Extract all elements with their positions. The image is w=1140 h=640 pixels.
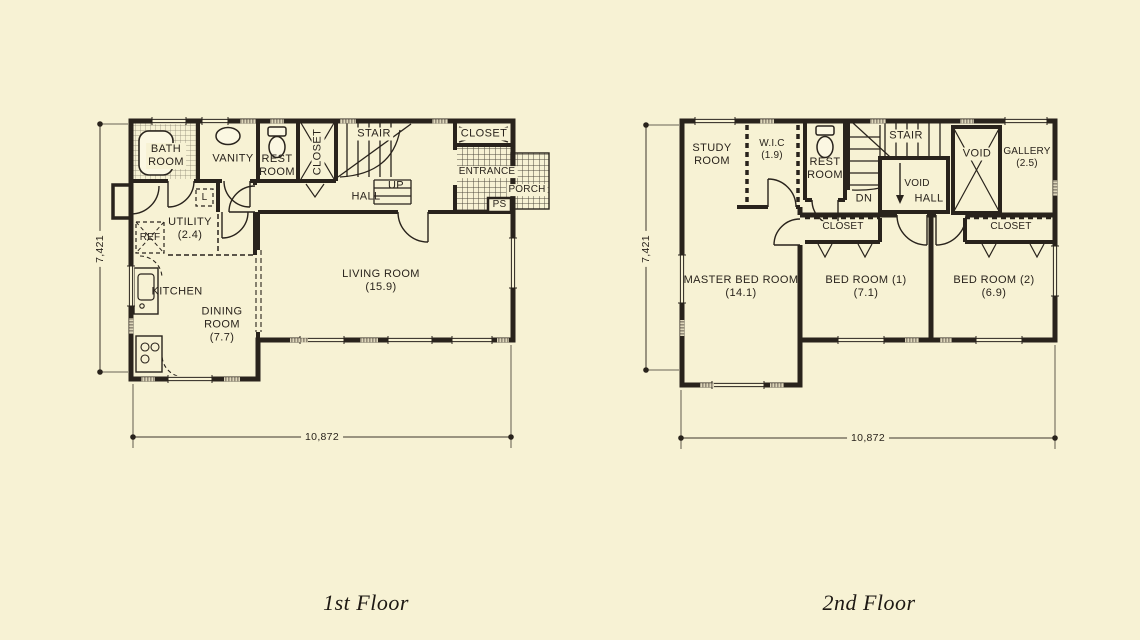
dim-height-1f: 7,421	[94, 231, 106, 267]
room-label-porch: PORCH	[506, 184, 547, 196]
dim-height-2f: 7,421	[640, 231, 652, 267]
stove-burner	[151, 343, 159, 351]
label-stair-dn: DN	[856, 193, 873, 206]
floor2-fixtures	[816, 126, 834, 158]
room-label-bedroom1: BED ROOM (1) (7.1)	[825, 274, 906, 300]
stove-burner	[141, 343, 149, 351]
room-label-wic: W.I.C (1.9)	[759, 138, 784, 162]
dim-width-2f: 10,872	[847, 432, 889, 444]
room-label-kitchen: KITCHEN	[151, 286, 202, 299]
floor1-entry-recess	[113, 185, 131, 218]
room-label-vanity: VANITY	[212, 153, 253, 166]
room-label-stair-2f: STAIR	[887, 130, 925, 143]
floor2-plan	[678, 117, 1059, 389]
room-label-entrance: ENTRANCE	[457, 166, 518, 178]
wic-partitions	[747, 125, 798, 204]
label-void-small: VOID	[904, 178, 929, 190]
toilet-tank	[816, 126, 834, 135]
room-label-gallery: GALLERY (2.5)	[1003, 146, 1050, 170]
room-label-entry-closet: CLOSET	[459, 128, 509, 141]
room-label-closet-bed1: CLOSET	[820, 221, 865, 233]
room-label-study: STUDY ROOM	[692, 142, 731, 168]
room-label-restroom-1f: REST ROOM	[259, 153, 295, 179]
room-label-living: LIVING ROOM (15.9)	[342, 268, 420, 294]
dim-width-1f: 10,872	[301, 431, 343, 443]
room-label-bedroom2: BED ROOM (2) (6.9)	[953, 274, 1034, 300]
kitchen-faucet	[140, 304, 144, 308]
room-label-closet-bed2: CLOSET	[988, 221, 1033, 233]
floor-plan-page: BATH ROOM VANITY REST ROOM CLOSET STAIR …	[0, 0, 1140, 640]
room-label-hall-2f: HALL	[914, 193, 943, 206]
room-label-bath: BATH ROOM	[146, 143, 186, 169]
label-ps: PS	[493, 199, 507, 211]
floor2-title: 2nd Floor	[822, 590, 915, 616]
toilet-bowl	[817, 137, 833, 158]
room-label-master-bedroom: MASTER BED ROOM (14.1)	[684, 274, 799, 300]
label-laundry: L	[202, 192, 208, 204]
room-label-hall-1f: HALL	[351, 191, 380, 204]
label-ref: REF	[140, 232, 161, 244]
room-label-stair-1f: STAIR	[355, 128, 393, 141]
room-label-utility: UTILITY (2.4)	[168, 216, 212, 242]
label-void-large: VOID	[961, 148, 994, 161]
stove	[136, 336, 162, 372]
label-stair-up: UP	[388, 180, 404, 193]
room-label-restroom-2f: REST ROOM	[807, 156, 843, 182]
floor-plan-canvas	[0, 0, 1140, 640]
porch-hatch	[511, 153, 549, 209]
room-label-dining: DINING ROOM (7.7)	[202, 306, 243, 345]
floor1-title: 1st Floor	[323, 590, 409, 616]
stove-burner	[141, 355, 149, 363]
vanity-sink	[216, 128, 240, 145]
room-label-hall-closet: CLOSET	[312, 127, 325, 177]
toilet-tank	[268, 127, 286, 136]
